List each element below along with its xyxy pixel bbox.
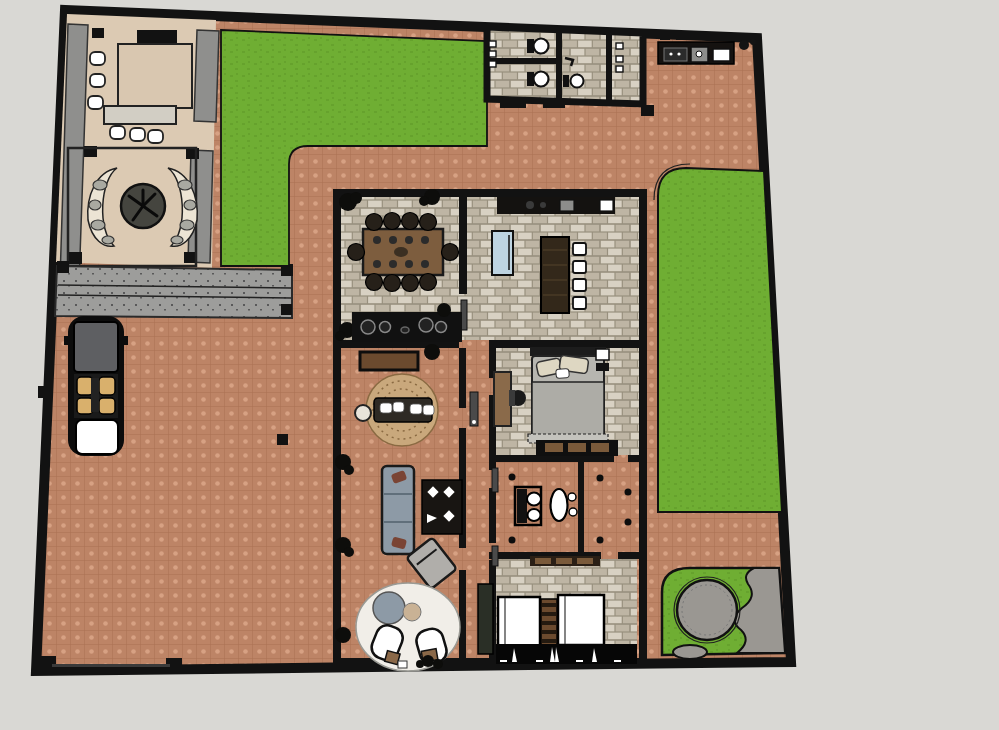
gate-hinge [38,386,48,398]
sideboard [360,352,418,370]
single-bed-left [498,597,540,647]
right-lawn [658,168,782,512]
round-pond [677,580,737,640]
floor-plan-canvas [0,0,999,730]
pedestal-sink [551,489,568,521]
walkway-band [55,266,292,318]
patio-table [118,44,192,108]
path-post [277,434,288,445]
tap [569,508,577,516]
grill-top [664,48,687,61]
stall-wall-v2 [606,31,612,103]
desk-chair-back [509,390,515,406]
counter-item [676,33,688,40]
kitchen-sink [600,200,613,211]
appliance-knob [696,51,702,57]
twin-door [492,546,498,566]
toilet-tank [517,489,527,523]
kitchen-wall-counter [497,197,615,214]
bean-bag [373,592,405,624]
kitchen-hob [526,201,534,209]
side-table [355,405,371,421]
coffee-table [422,480,462,534]
wardrobe-drawers [545,443,609,452]
duvet-fold [532,382,604,438]
corner-post [641,105,654,116]
stall-wall-v [556,28,562,103]
toilet-seat [528,509,541,521]
plant [424,344,440,360]
pot-plant [750,39,756,45]
stall-wall-h [487,58,561,64]
floor-plan [0,0,999,730]
headboard [530,347,606,356]
bathroom-door [492,468,498,492]
gravel-blob-bottom [673,645,707,659]
island-bench [541,237,569,313]
outdoor-sink [713,49,730,61]
door-mat [500,101,526,108]
rug-detail [398,661,407,668]
guest-bathroom-block [487,27,654,116]
nightstand [596,349,609,360]
car-trunk [76,420,118,454]
zen-garden [662,568,785,659]
counter-plant [437,303,451,317]
tap [568,493,576,501]
gate-post [40,656,56,670]
counter-item [660,34,670,40]
car-console [91,378,99,412]
door-mat [543,101,565,108]
patio-bench [104,106,176,124]
pillow-small [556,368,570,378]
house [333,189,647,671]
car-roof [74,322,118,372]
nightstand-item [596,363,609,371]
toilet-bowl [527,493,541,506]
planter-strip-right-upper [194,30,219,122]
pot-plant [739,40,749,50]
refrigerator [492,231,513,275]
gate-rail [52,664,170,667]
storage-bench [478,584,493,654]
walkway-post [57,261,69,273]
kitchen-appliance [560,200,574,211]
walkway [55,261,293,318]
pouf [403,603,421,621]
desk [494,372,511,426]
kitchen-hob [540,202,546,208]
walkway-post [281,304,292,315]
